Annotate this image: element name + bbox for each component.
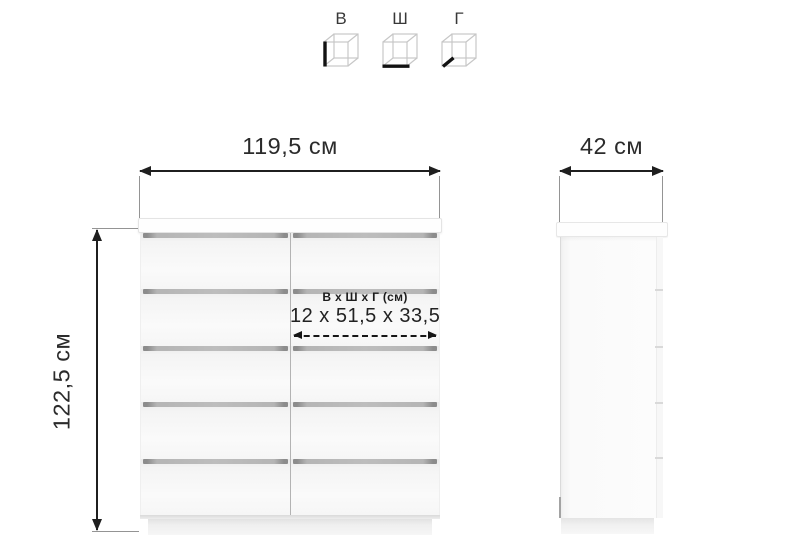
front-width-dimension-label: 119,5 см [140, 133, 440, 160]
drawer-row [141, 233, 439, 289]
legend-label-width: Ш [377, 8, 424, 30]
drawer-row [141, 402, 439, 458]
legend-item-height: В [318, 8, 365, 70]
extension-line [139, 176, 140, 218]
drawer [291, 459, 440, 515]
drawer-row [141, 459, 439, 515]
cube-width-icon [380, 32, 420, 70]
drawer [141, 233, 290, 289]
drawer-size-annotation-title: В х Ш х Г (см) [290, 290, 440, 304]
side-drawer-front-edge [656, 237, 663, 518]
dresser-front-view: В х Ш х Г (см) 12 х 51,5 х 33,5 [140, 218, 440, 535]
product-dimensions-diagram: В Ш Г [0, 0, 800, 560]
dresser-side-view [560, 237, 663, 518]
drawer [141, 289, 290, 345]
side-depth-dimension-arrow [560, 170, 663, 172]
cube-height-icon [321, 32, 361, 70]
side-view-plinth [561, 518, 654, 534]
legend-item-depth: Г [436, 8, 483, 70]
side-depth-dimension-label: 42 см [560, 133, 663, 160]
drawer [141, 402, 290, 458]
front-height-dimension-label: 122,5 см [49, 320, 76, 444]
extension-line [439, 176, 440, 218]
drawer [291, 233, 440, 289]
legend-label-depth: Г [436, 8, 483, 30]
cube-depth-icon [439, 32, 479, 70]
front-width-dimension-arrow [140, 170, 440, 172]
drawer-front-notch [655, 289, 663, 291]
drawer-gap [143, 459, 288, 464]
extension-line [92, 228, 139, 229]
drawer-rows [140, 233, 440, 515]
drawer-front-notch [655, 457, 663, 459]
dresser-top-panel [138, 218, 442, 233]
drawer-size-annotation: В х Ш х Г (см) 12 х 51,5 х 33,5 [290, 290, 440, 328]
side-view-top-panel [556, 222, 668, 237]
drawer [141, 346, 290, 402]
drawer-width-dashed-arrow [294, 335, 436, 337]
legend-label-height: В [318, 8, 365, 30]
drawer-gap [143, 233, 288, 238]
drawer-size-annotation-value: 12 х 51,5 х 33,5 [290, 305, 440, 328]
drawer-gap [143, 402, 288, 407]
drawer [291, 346, 440, 402]
drawer-gap [293, 233, 438, 238]
drawer-gap [143, 346, 288, 351]
drawer-front-notch [655, 346, 663, 348]
drawer-gap [293, 402, 438, 407]
extension-line [92, 531, 139, 532]
dimension-legend: В Ш Г [0, 8, 800, 70]
drawer-gap [293, 346, 438, 351]
drawer-gap [143, 289, 288, 294]
legend-item-width: Ш [377, 8, 424, 70]
drawer [291, 402, 440, 458]
drawer-row [141, 346, 439, 402]
front-height-dimension-arrow [96, 230, 98, 530]
drawer [141, 459, 290, 515]
drawer-gap [293, 459, 438, 464]
side-edge-mark [559, 497, 561, 518]
dresser-plinth [148, 519, 432, 535]
drawer-front-notch [655, 402, 663, 404]
